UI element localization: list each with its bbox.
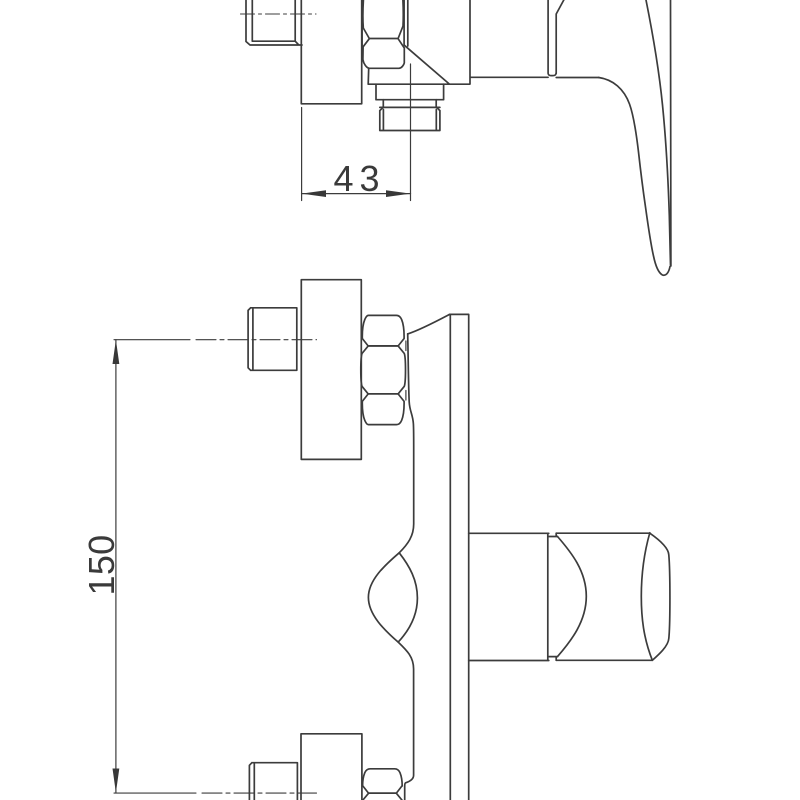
svg-text:43: 43: [334, 158, 386, 199]
svg-text:150: 150: [81, 535, 122, 596]
